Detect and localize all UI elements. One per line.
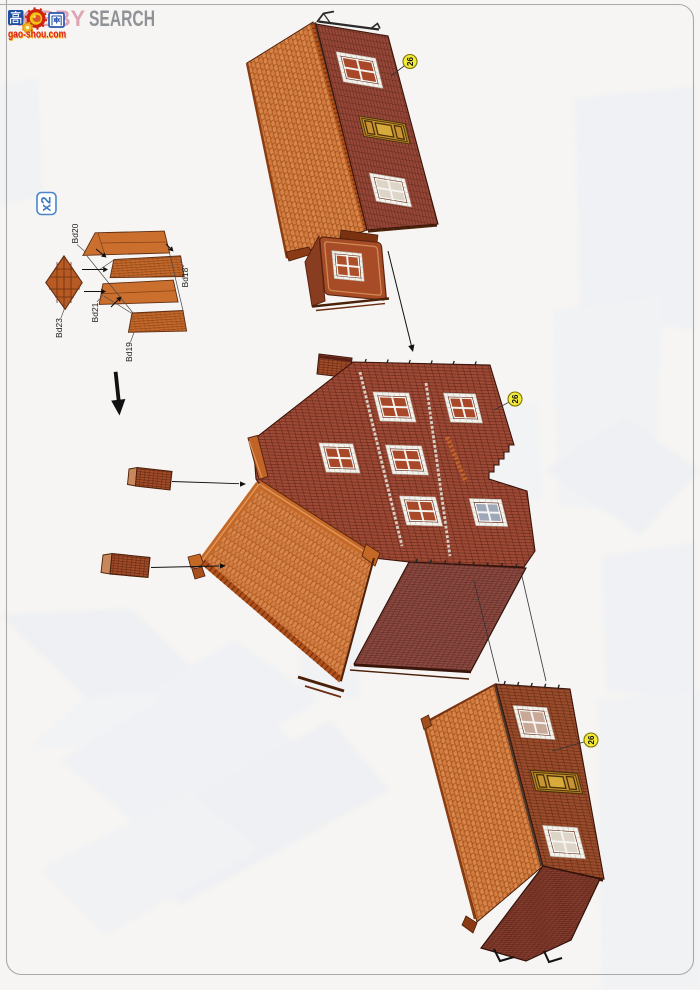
svg-text:26: 26	[406, 57, 415, 66]
svg-text:Bd20: Bd20	[70, 223, 80, 243]
svg-text:Bd21: Bd21	[90, 302, 100, 322]
svg-text:gao-shou.com: gao-shou.com	[8, 29, 66, 41]
svg-text:26: 26	[511, 394, 520, 403]
svg-text:Bd19: Bd19	[124, 342, 134, 362]
svg-text:26: 26	[587, 735, 596, 744]
svg-text:SEARCH: SEARCH	[89, 6, 155, 31]
svg-text:x2: x2	[39, 196, 54, 211]
svg-text:Bd18: Bd18	[180, 267, 190, 287]
svg-text:Bd23: Bd23	[54, 318, 64, 338]
